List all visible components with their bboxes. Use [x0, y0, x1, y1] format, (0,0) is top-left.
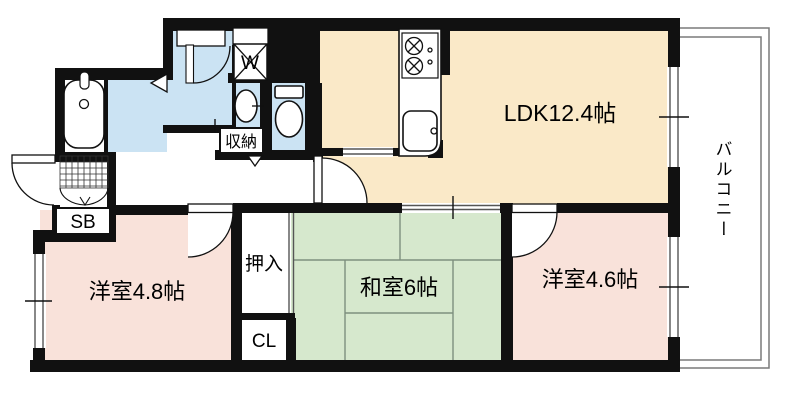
- floorplan-svg: LDK12.4帖 洋室4.8帖 和室6帖 洋室4.6帖 バルコニー 押入 CL …: [0, 0, 800, 411]
- storage-door-chevron: [248, 156, 262, 166]
- wall-bedrooms-top-d: [557, 203, 673, 213]
- toilet-bowl-icon: [276, 101, 303, 137]
- door-leaf-western2: [512, 204, 557, 213]
- bathtub-icon: [64, 80, 104, 148]
- floorplan-canvas: LDK12.4帖 洋室4.8帖 和室6帖 洋室4.6帖 バルコニー 押入 CL …: [0, 0, 800, 411]
- wall-oshiire-left: [231, 205, 242, 368]
- door-leaf-washroom: [186, 45, 194, 83]
- wall-block-toilet-top: [267, 31, 320, 83]
- wall-oshiire-cl-divider: [233, 313, 295, 320]
- label-balcony: バルコニー: [713, 140, 732, 240]
- wall-washroom-stub: [163, 18, 173, 80]
- kitchen: [399, 29, 441, 156]
- label-washer: W: [241, 53, 259, 74]
- label-oshiire: 押入: [245, 253, 283, 275]
- washroom-floor-left: [108, 78, 167, 152]
- bathtub-faucet-icon: [80, 72, 89, 89]
- label-ldk: LDK12.4帖: [504, 100, 617, 126]
- window-washroom: [177, 30, 225, 46]
- wall-ldk-bottom-a: [320, 148, 343, 156]
- window-washer: [233, 28, 268, 45]
- door-leaf-ldk: [314, 156, 322, 203]
- room-ldk-floor: [316, 26, 676, 208]
- label-western2: 洋室4.6帖: [542, 267, 639, 292]
- kitchen-sink-icon: [403, 111, 437, 151]
- genkan-step-chevron: [80, 197, 90, 205]
- genkan: [60, 156, 108, 205]
- wall-japanese-right: [501, 203, 513, 368]
- wall-cl-right: [286, 318, 296, 368]
- door-arc-entrance: [12, 163, 54, 205]
- wall-bedrooms-top-b: [233, 203, 402, 213]
- toilet-tank-icon: [275, 86, 303, 98]
- label-japanese: 和室6帖: [360, 275, 438, 300]
- label-shoebox: SB: [70, 212, 95, 233]
- label-western1: 洋室4.8帖: [89, 279, 186, 304]
- door-leaf-entrance: [12, 155, 55, 163]
- label-closet: CL: [252, 331, 276, 352]
- sliding-door-ldk-japanese: [402, 203, 500, 213]
- wall-bottom: [30, 360, 680, 372]
- wall-bath-top: [55, 68, 170, 80]
- door-leaf-western1: [188, 204, 233, 213]
- label-storage: 収納: [225, 133, 257, 151]
- wall-bedrooms-top-a: [110, 205, 188, 215]
